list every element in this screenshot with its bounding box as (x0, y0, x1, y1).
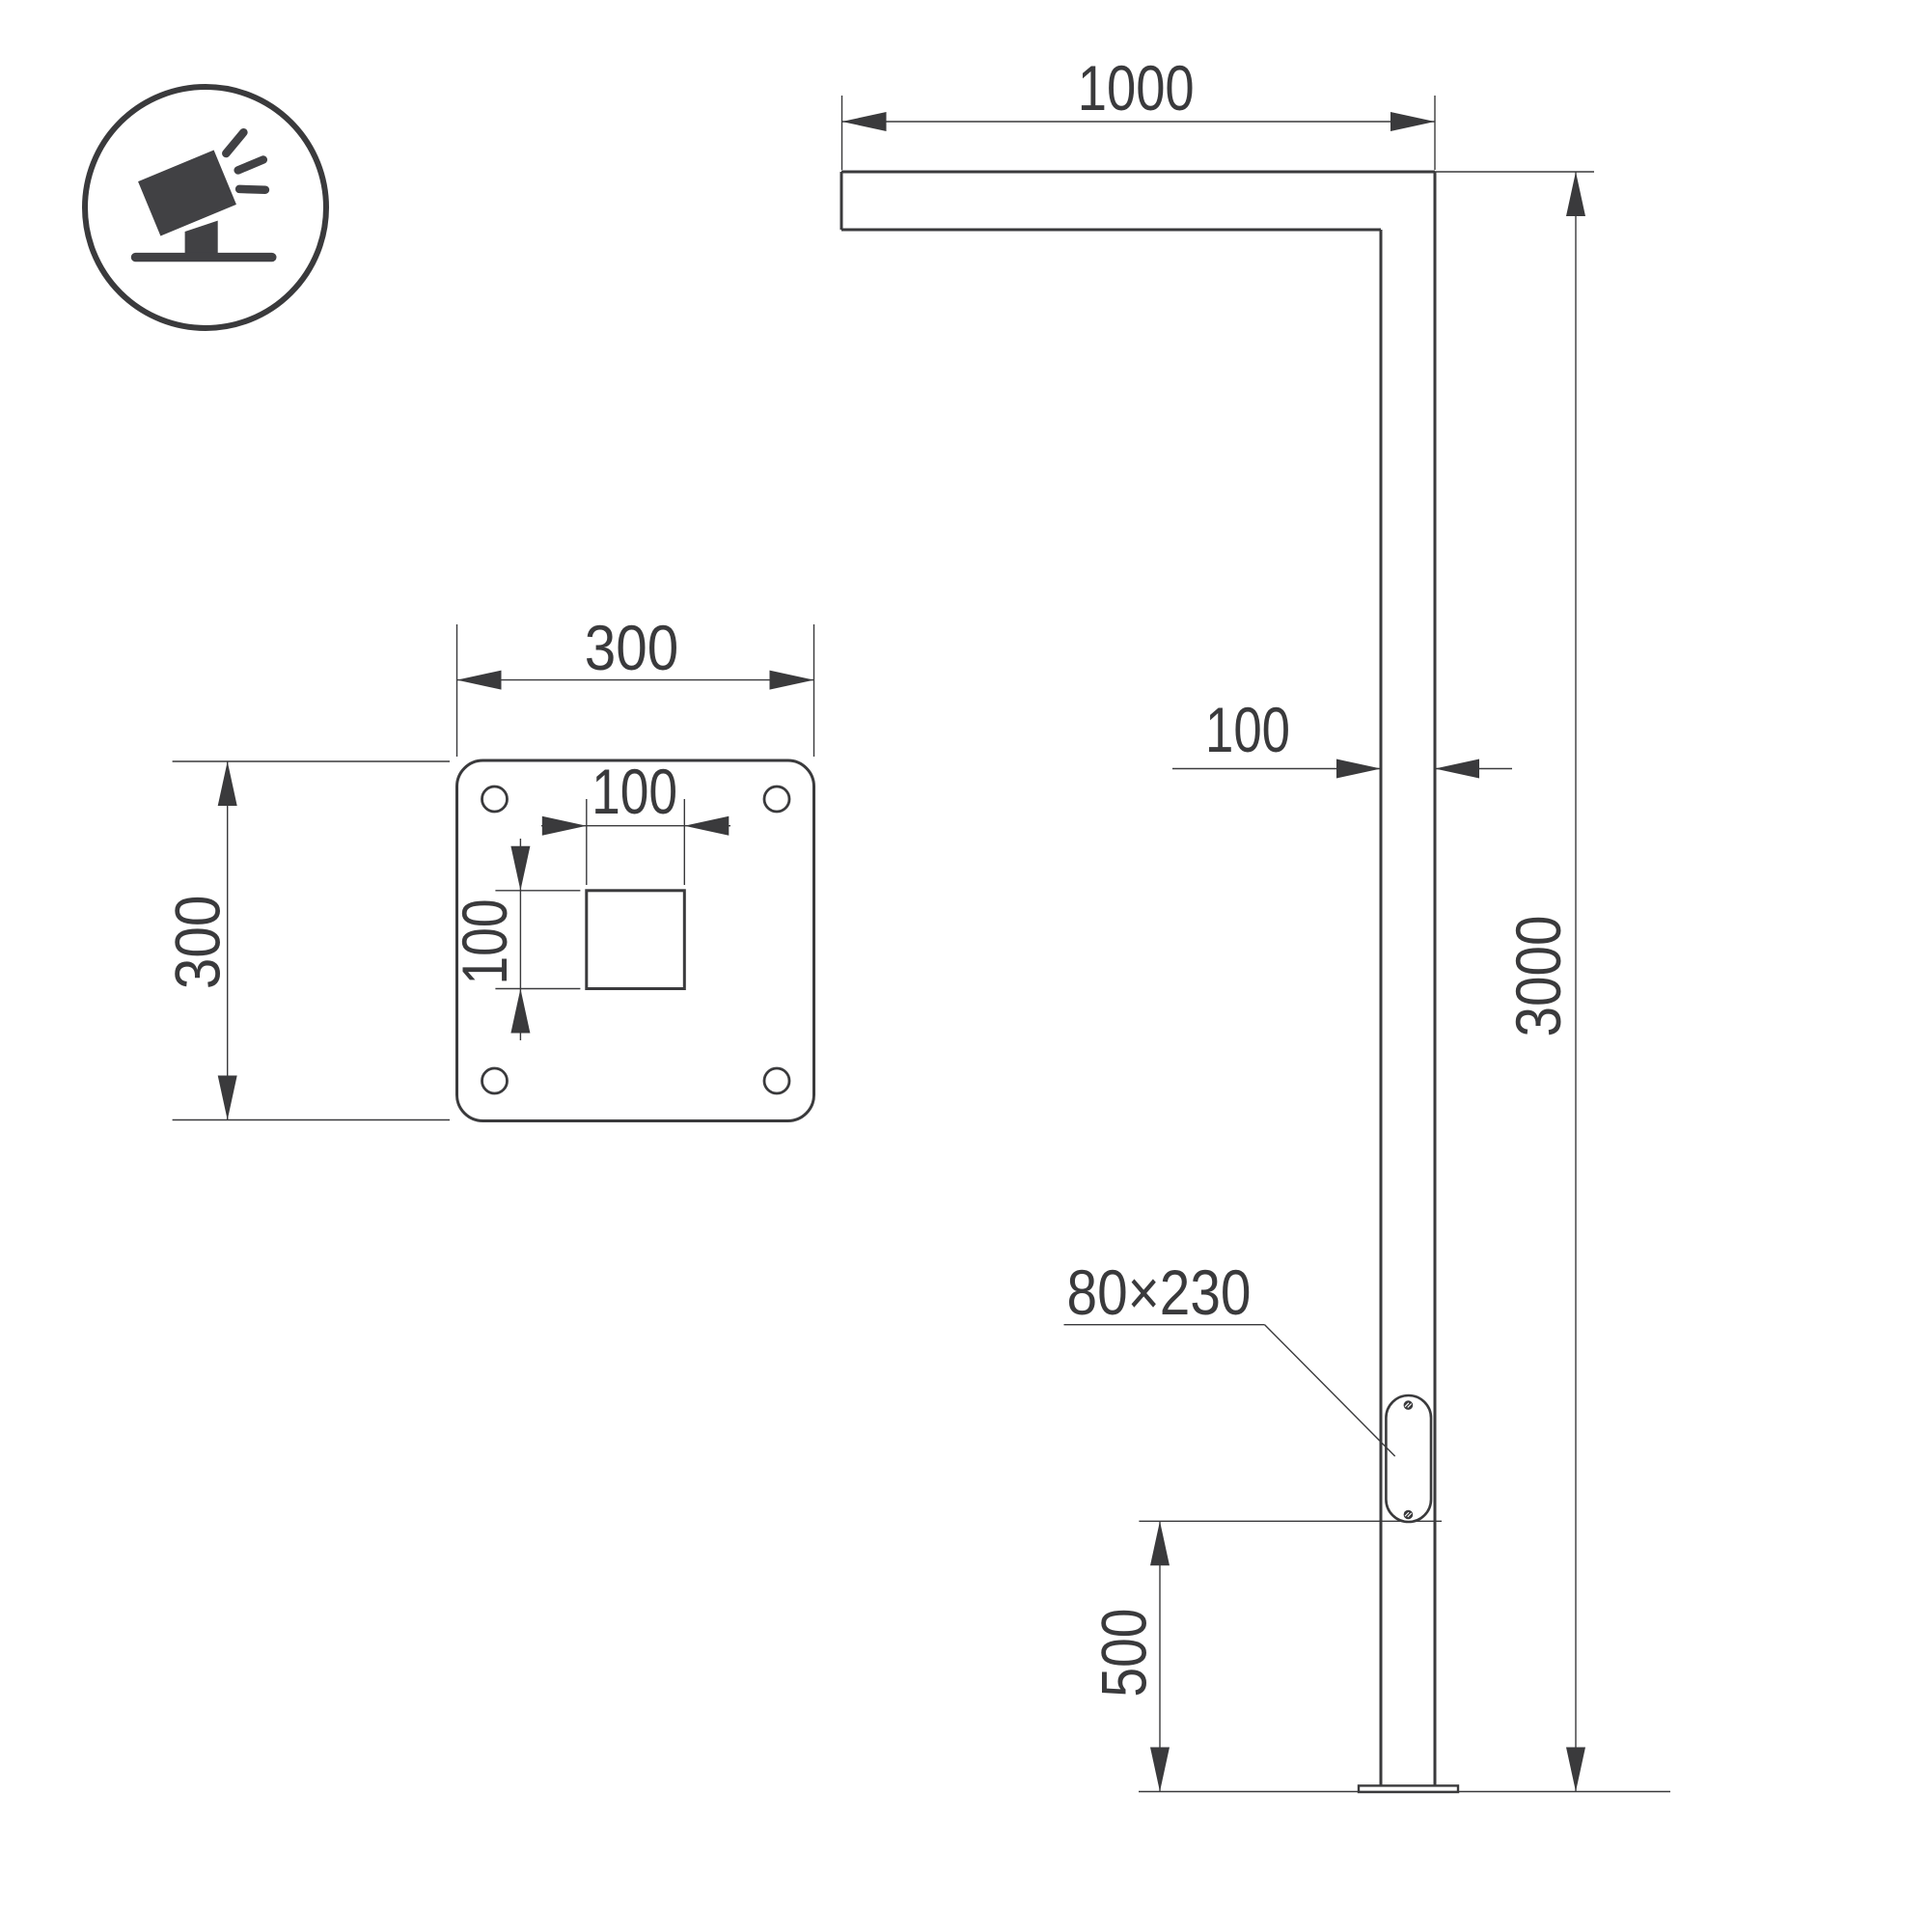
svg-text:1000: 1000 (1078, 52, 1195, 124)
svg-text:100: 100 (1205, 694, 1290, 765)
svg-text:3000: 3000 (1502, 916, 1574, 1037)
svg-text:300: 300 (161, 896, 233, 990)
svg-text:100: 100 (592, 756, 677, 827)
svg-text:100: 100 (449, 899, 520, 985)
svg-text:80×230: 80×230 (1067, 1256, 1252, 1328)
svg-text:500: 500 (1088, 1609, 1160, 1697)
svg-text:300: 300 (585, 612, 679, 683)
